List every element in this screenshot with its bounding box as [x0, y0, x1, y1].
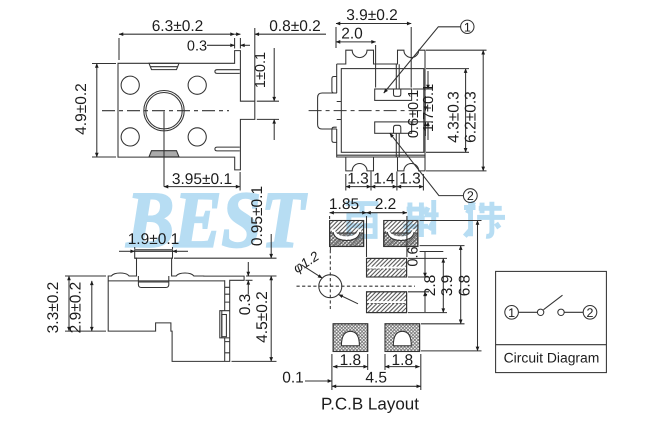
svg-text:1.7±0.1: 1.7±0.1 [421, 84, 437, 132]
svg-text:1.9±0.1: 1.9±0.1 [128, 231, 180, 248]
svg-text:6.3±0.2: 6.3±0.2 [152, 18, 204, 35]
svg-text:0.8±0.2: 0.8±0.2 [269, 18, 321, 35]
svg-text:6.8: 6.8 [457, 275, 474, 297]
svg-text:3.9±0.2: 3.9±0.2 [346, 7, 398, 24]
svg-text:0.1: 0.1 [282, 370, 304, 387]
svg-text:1.85: 1.85 [329, 196, 359, 213]
svg-text:0.95±0.1: 0.95±0.1 [249, 186, 266, 246]
svg-text:0.6±0.1: 0.6±0.1 [406, 90, 422, 138]
svg-text:2.2: 2.2 [375, 196, 397, 213]
svg-text:0.3: 0.3 [187, 39, 207, 55]
svg-text:2.8: 2.8 [422, 275, 439, 297]
svg-text:0.3: 0.3 [237, 294, 254, 316]
svg-text:P.C.B Layout: P.C.B Layout [321, 395, 419, 414]
svg-text:Circuit Diagram: Circuit Diagram [504, 350, 600, 366]
svg-text:1.4: 1.4 [373, 171, 395, 188]
svg-text:3.3±0.2: 3.3±0.2 [45, 282, 62, 334]
svg-text:4.5±0.2: 4.5±0.2 [254, 291, 271, 343]
svg-text:4.3±0.3: 4.3±0.3 [446, 91, 463, 143]
svg-text:3.95±0.1: 3.95±0.1 [172, 171, 232, 188]
svg-text:2.9±0.2: 2.9±0.2 [68, 282, 85, 334]
svg-text:4.9±0.2: 4.9±0.2 [73, 83, 90, 135]
svg-text:2: 2 [587, 306, 594, 320]
svg-text:4.5: 4.5 [365, 370, 387, 387]
svg-text:0.6: 0.6 [406, 246, 422, 266]
svg-text:1±0.1: 1±0.1 [253, 52, 269, 88]
svg-text:1: 1 [464, 20, 471, 34]
svg-text:3.9: 3.9 [439, 275, 456, 297]
svg-text:6.2±0.3: 6.2±0.3 [463, 91, 480, 143]
svg-text:1.3: 1.3 [347, 171, 369, 188]
svg-text:1.3: 1.3 [399, 171, 421, 188]
svg-text:2: 2 [467, 189, 474, 203]
svg-text:2.0: 2.0 [341, 25, 363, 42]
svg-text:1: 1 [508, 306, 515, 320]
